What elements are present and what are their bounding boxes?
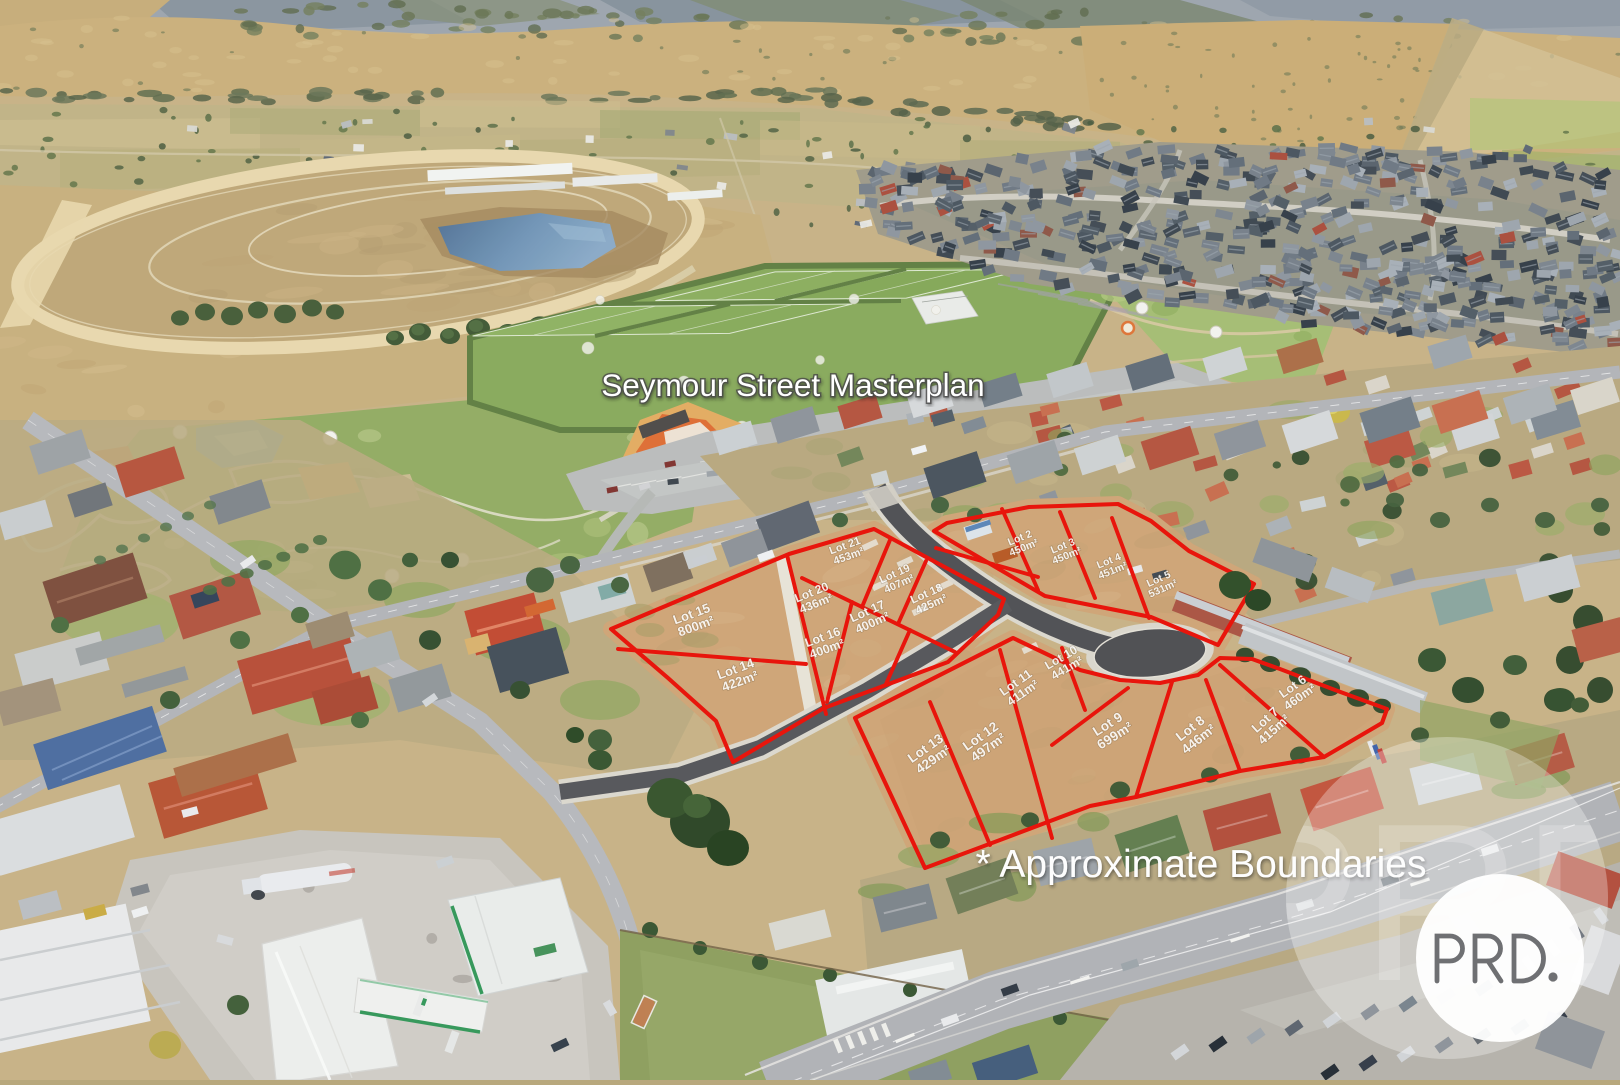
svg-text:Seymour Street Masterplan: Seymour Street Masterplan (601, 367, 984, 403)
